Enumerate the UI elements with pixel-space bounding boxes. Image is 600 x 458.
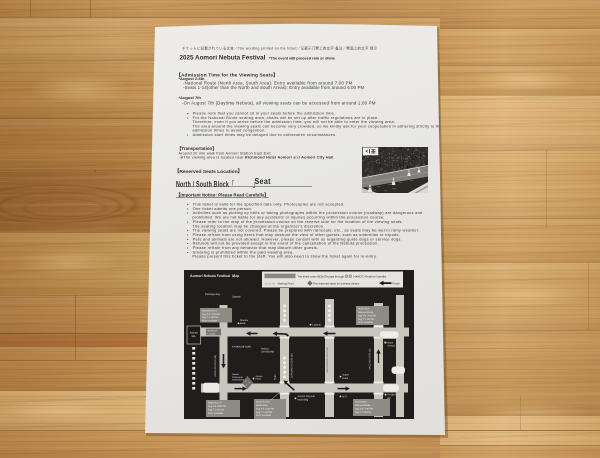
svg-text:Seats No.9-14: Seats No.9-14 bbox=[202, 310, 217, 313]
svg-text:Bank: Bank bbox=[240, 322, 246, 325]
svg-text:Prefectural: Prefectural bbox=[232, 376, 243, 379]
svg-text:Aug 7: 1:00 PM: Aug 7: 1:00 PM bbox=[208, 408, 224, 411]
svg-text:National Route: National Route bbox=[358, 311, 374, 314]
svg-text:Plaza: Plaza bbox=[256, 378, 262, 381]
svg-text:Aomori: Aomori bbox=[256, 375, 263, 378]
svg-text:HONCHO-DORI (St): HONCHO-DORI (St) bbox=[214, 355, 217, 377]
svg-text:Auga: Auga bbox=[274, 374, 277, 380]
svg-text:JOYSOUND: JOYSOUND bbox=[261, 351, 275, 354]
svg-text:North Area: North Area bbox=[358, 308, 370, 311]
svg-text:BC: BC bbox=[388, 397, 392, 400]
svg-text:Aug 2-6: 7:00 PM: Aug 2-6: 7:00 PM bbox=[202, 313, 220, 316]
svg-text:Aug 2-6: 7:00 PM: Aug 2-6: 7:00 PM bbox=[358, 314, 376, 317]
svg-text:KYOBASHI-DORI: KYOBASHI-DORI bbox=[232, 346, 251, 349]
svg-text:South Area: South Area bbox=[256, 404, 268, 407]
svg-text:Main Bldg: Main Bldg bbox=[298, 398, 309, 401]
svg-text:Entry available: Entry available bbox=[256, 414, 272, 417]
svg-text:Entry available: Entry available bbox=[202, 319, 218, 322]
svg-text:Joymall: Joymall bbox=[232, 296, 241, 299]
svg-text:HACCHO-DORI (St): HACCHO-DORI (St) bbox=[369, 348, 372, 370]
svg-text:Aug 2-6: 6:00 PM: Aug 2-6: 6:00 PM bbox=[208, 405, 226, 408]
svg-text:Entry available: Entry available bbox=[358, 321, 374, 324]
svg-text:Aomori: Aomori bbox=[232, 373, 239, 376]
svg-text:HACHINOHE-DORI (St): HACHINOHE-DORI (St) bbox=[326, 347, 329, 373]
svg-text:The times when NEBUTA pass thr: The times when NEBUTA pass through bbox=[298, 275, 345, 278]
svg-text:☆☆☆: ☆☆☆ bbox=[265, 281, 276, 286]
svg-text:SHINMACHI-DORI (St): SHINMACHI-DORI (St) bbox=[291, 353, 294, 378]
svg-text:Entry available: Entry available bbox=[208, 412, 224, 415]
svg-text:Passage way: Passage way bbox=[205, 293, 221, 296]
svg-text:The reserved seats for oversea: The reserved seats for oversea visitors bbox=[313, 283, 360, 286]
svg-text:Sta.: Sta. bbox=[191, 335, 196, 338]
svg-text:Lawson: Lawson bbox=[313, 324, 322, 327]
svg-text:Starting Point: Starting Point bbox=[278, 283, 294, 286]
svg-text:South Area: South Area bbox=[355, 401, 367, 404]
svg-text:NTT: NTT bbox=[343, 395, 348, 398]
svg-text:Finish: Finish bbox=[393, 283, 401, 286]
svg-text:Aug 7: 1:00 PM: Aug 7: 1:00 PM bbox=[355, 411, 371, 414]
svg-text:Aomori Nebuta Festival Map: Aomori Nebuta Festival Map bbox=[190, 274, 240, 278]
svg-text:Aug 2-6: 7:00 PM: Aug 2-6: 7:00 PM bbox=[355, 407, 373, 410]
svg-text:Aug 7: 1:00 PM: Aug 7: 1:00 PM bbox=[358, 318, 374, 321]
svg-text:Seats No.1-5: Seats No.1-5 bbox=[208, 402, 222, 405]
svg-text:Aug 2-6: 6:00 PM: Aug 2-6: 6:00 PM bbox=[256, 407, 274, 410]
svg-text:Hotel: Hotel bbox=[343, 377, 349, 380]
svg-text:Aug 7: 1:00 PM: Aug 7: 1:00 PM bbox=[256, 411, 272, 414]
svg-text:Aomori: Aomori bbox=[388, 345, 396, 348]
svg-text:1-chome: 1-chome bbox=[207, 332, 216, 335]
svg-text:Seats No.6-8: Seats No.6-8 bbox=[256, 401, 270, 404]
svg-text:Shinmachi: Shinmachi bbox=[207, 330, 217, 333]
svg-text:Government: Government bbox=[232, 379, 244, 382]
svg-text:Aug 7: 1:00 PM: Aug 7: 1:00 PM bbox=[202, 316, 218, 319]
svg-text:National Route: National Route bbox=[355, 404, 371, 407]
svg-text:HANETO Rode on Standby: HANETO Rode on Standby bbox=[354, 275, 387, 278]
